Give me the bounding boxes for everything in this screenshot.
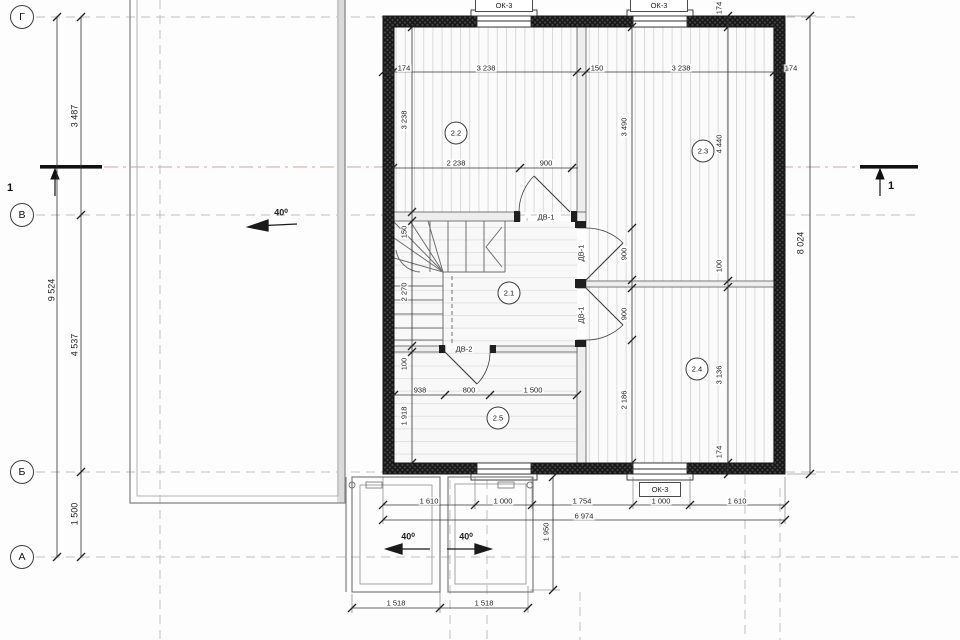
window-tag-top-left: ОК-3 [475, 0, 533, 12]
dim-porch-1: 1 518 [386, 599, 407, 607]
window-tag-bottom: ОК-3 [639, 482, 681, 497]
axis-bubble-v: В [10, 203, 34, 227]
dim-inner-right-5: 174 [715, 445, 723, 460]
dim-mid-2: 800 [462, 386, 477, 394]
dim-bottom-5: 1 610 [727, 497, 748, 505]
dim-top-4: 3 238 [671, 64, 692, 72]
dim-left-total: 9 524 [48, 278, 57, 303]
dim-bottom-2: 1 000 [493, 497, 514, 505]
door-tag-hall-top: ДВ-1 [537, 213, 556, 221]
dim-inner-right-2: 4 440 [715, 134, 723, 155]
dim-inner-right-3: 100 [715, 259, 723, 274]
dim-left-seg-2: 4 537 [71, 333, 80, 358]
dim-inner-mid-1: 3 490 [620, 117, 628, 138]
plan-linework [0, 0, 960, 640]
dim-top-1: 174 [397, 64, 412, 72]
window-tag-top-right: ОК-3 [630, 0, 688, 12]
dim-inner-left-4: 100 [400, 357, 408, 372]
dim-upper-mid-1: 2 238 [446, 159, 467, 167]
door-tag-bottom: ДВ-2 [455, 345, 474, 353]
axis-bubble-g: Г [10, 5, 34, 29]
dim-mid-1: 938 [413, 386, 428, 394]
dim-top-2: 3 238 [476, 64, 497, 72]
roof-slope-porch-left: 40⁰ [400, 533, 416, 542]
roof-slope-porch-right: 40⁰ [458, 533, 474, 542]
dim-inner-mid-4: 2 186 [620, 390, 628, 411]
roof-slope-main: 40⁰ [273, 209, 289, 218]
dim-top-3: 150 [590, 64, 605, 72]
dim-inner-mid-2: 900 [620, 247, 628, 262]
dim-porch-2: 1 518 [474, 599, 495, 607]
door-tag-right-lower: ДВ-1 [577, 306, 585, 325]
dim-bottom-3: 1 754 [572, 497, 593, 505]
dim-right-total: 8 024 [797, 231, 806, 256]
dim-bottom-1: 1 610 [419, 497, 440, 505]
dim-inner-right-1: 174 [715, 1, 723, 16]
annex-outline [130, 0, 345, 503]
section-number-left: 1 [7, 182, 13, 194]
floor-plan-drawing: Г В Б А 1 1 ОК-3 ОК-3 ОК-3 2.2 2.3 2.1 2… [0, 0, 960, 640]
dim-left-seg-1: 3 487 [71, 104, 80, 129]
dim-top-5: 174 [784, 64, 799, 72]
room-bubble-2-3: 2.3 [692, 140, 715, 163]
room-bubble-2-2: 2.2 [445, 122, 468, 145]
dim-bottom-4: 1 000 [651, 497, 672, 505]
door-tag-right-upper: ДВ-1 [577, 244, 585, 263]
dim-bottom-total: 6 974 [574, 512, 595, 520]
dim-upper-mid-2: 900 [539, 159, 554, 167]
dim-inner-right-4: 3 136 [715, 365, 723, 386]
dim-porch-height: 1 950 [542, 522, 550, 543]
room-bubble-2-1: 2.1 [498, 282, 521, 305]
axis-bubble-b: Б [10, 460, 34, 484]
dim-mid-3: 1 500 [523, 386, 544, 394]
room-bubble-2-4: 2.4 [686, 358, 709, 381]
section-number-right: 1 [888, 180, 894, 192]
dim-inner-left-3: 2 270 [400, 282, 408, 303]
porches [346, 477, 533, 592]
axis-bubble-a: А [10, 545, 34, 569]
dim-inner-mid-3: 900 [620, 307, 628, 322]
room-bubble-2-5: 2.5 [487, 407, 510, 430]
dim-left-seg-3: 1 500 [71, 502, 80, 527]
dim-inner-left-1: 3 238 [400, 110, 408, 131]
dim-inner-left-5: 1 918 [400, 406, 408, 427]
dim-inner-left-2: 150 [400, 225, 408, 240]
